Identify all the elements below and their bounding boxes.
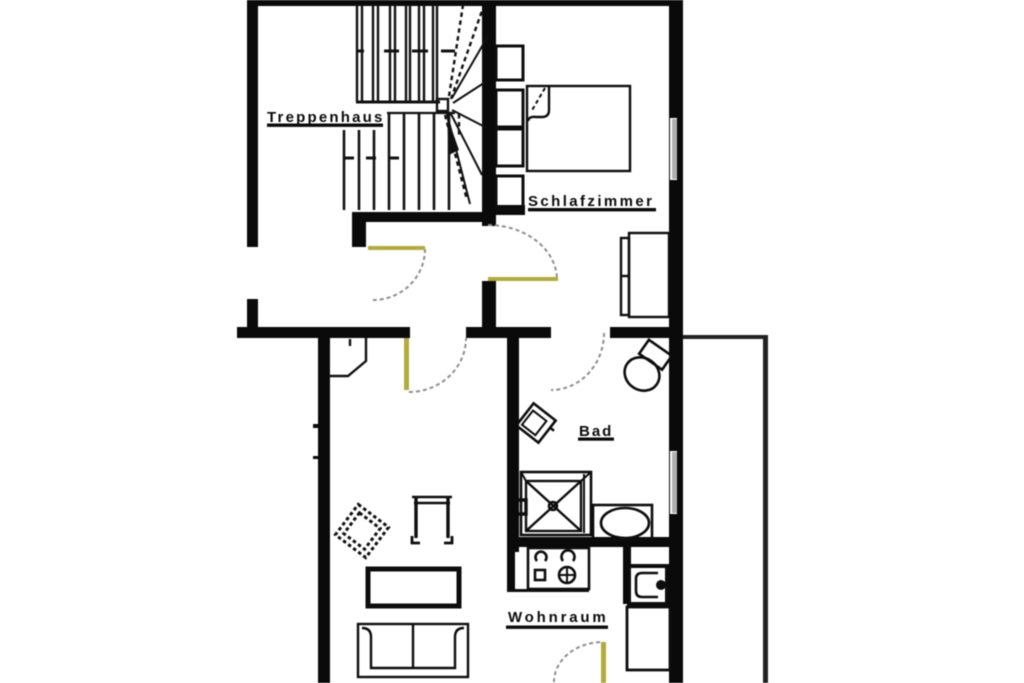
svg-text:Bad: Bad <box>579 423 613 440</box>
svg-text:Wohnraum: Wohnraum <box>508 609 608 626</box>
svg-text:Treppenhaus: Treppenhaus <box>267 109 385 126</box>
svg-text:Schlafzimmer: Schlafzimmer <box>528 193 654 210</box>
